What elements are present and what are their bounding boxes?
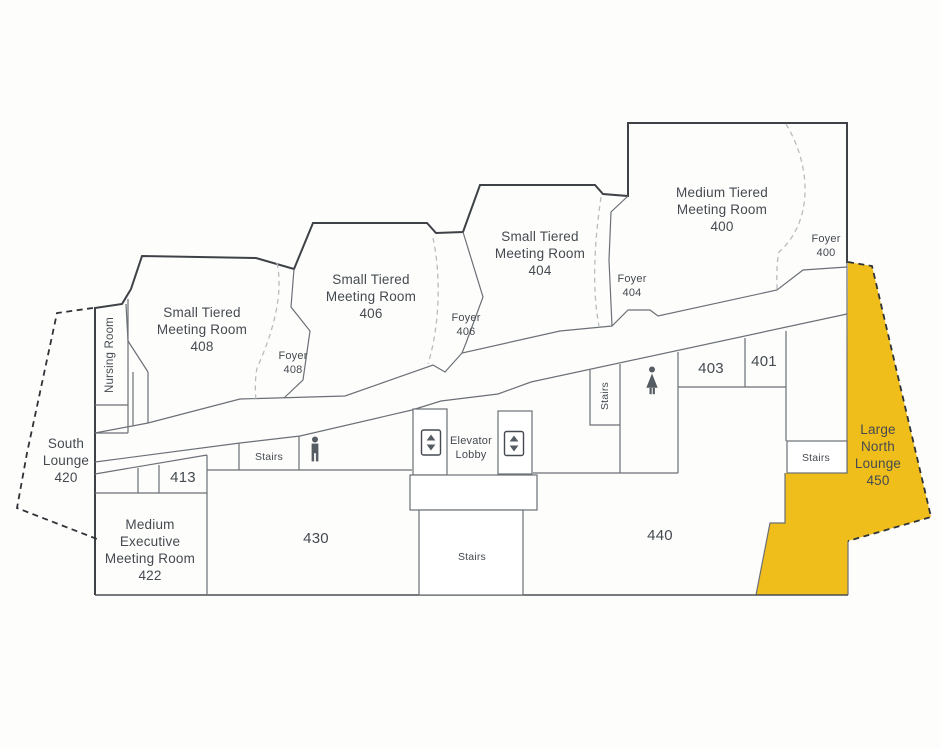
room-400-line1: Medium Tiered	[676, 185, 768, 200]
room-400-line2: Meeting Room	[677, 202, 767, 217]
room-408-line2: Meeting Room	[157, 322, 247, 337]
room-422-number: 422	[138, 568, 161, 583]
foyer-406-number: 406	[457, 326, 476, 338]
room-422-label[interactable]: Medium Executive Meeting Room 422	[105, 517, 195, 583]
elevator-lobby-lower-box	[410, 475, 537, 510]
room-400-number: 400	[710, 219, 733, 234]
foyer-404-label: Foyer 404	[617, 273, 646, 299]
room-404-line2: Meeting Room	[495, 246, 585, 261]
room-422-line3: Meeting Room	[105, 551, 195, 566]
room-422-line1: Medium	[125, 517, 174, 532]
floor-plan-svg: Small Tiered Meeting Room 408 Small Tier…	[0, 0, 940, 749]
foyer-404-number: 404	[623, 287, 642, 299]
room-406-label[interactable]: Small Tiered Meeting Room 406	[326, 272, 416, 321]
elevator-lobby-line2: Lobby	[456, 449, 487, 461]
foyer-400-label: Foyer 400	[811, 233, 840, 259]
womens-restroom-icon	[646, 367, 657, 395]
room-404-line1: Small Tiered	[501, 229, 578, 244]
elevator-right-icon	[505, 432, 524, 456]
nursing-room-label: Nursing Room	[104, 317, 116, 393]
room-north-lounge-450[interactable]	[756, 262, 931, 595]
room-430-label[interactable]: 430	[303, 530, 329, 547]
room-406-line2: Meeting Room	[326, 289, 416, 304]
stairs-east-label: Stairs	[802, 452, 830, 464]
stairs-west-box-walls	[207, 436, 412, 470]
foyer-404-dashed-line	[595, 197, 601, 326]
south-lounge-dashed-boundary	[17, 308, 97, 539]
north-lounge-number: 450	[866, 473, 889, 488]
foyer-406-line1: Foyer	[451, 312, 480, 324]
foyer-408-line1: Foyer	[278, 350, 307, 362]
foyer-406-label: Foyer 406	[451, 312, 480, 338]
room-403-label[interactable]: 403	[698, 360, 724, 377]
elevator-left-icon	[422, 430, 441, 455]
room-408-lower-walls	[126, 304, 148, 426]
foyer-400-dashed-line	[777, 124, 805, 289]
south-lounge-line2: Lounge	[43, 453, 89, 468]
north-lounge-line1: Large	[860, 422, 896, 437]
south-lounge-line1: South	[48, 436, 84, 451]
stairs-west-label: Stairs	[255, 451, 283, 463]
foyer-400-number: 400	[817, 247, 836, 259]
room-408-label[interactable]: Small Tiered Meeting Room 408	[157, 305, 247, 354]
foyer-404-line1: Foyer	[617, 273, 646, 285]
foyer-408-label: Foyer 408	[278, 350, 307, 376]
elevator-lobby-line1: Elevator	[450, 435, 492, 447]
foyer-400-line1: Foyer	[811, 233, 840, 245]
north-lounge-line3: Lounge	[855, 456, 901, 471]
room-401-label[interactable]: 401	[751, 353, 777, 370]
room-422-line2: Executive	[120, 534, 180, 549]
south-lounge-label[interactable]: South Lounge 420	[43, 436, 89, 485]
wall-408-406	[284, 269, 310, 398]
elevator-lobby-label: Elevator Lobby	[450, 435, 492, 461]
room-408-number: 408	[190, 339, 213, 354]
wall-404-400	[609, 196, 628, 326]
stairs-center-label: Stairs	[458, 551, 486, 563]
room-440-label[interactable]: 440	[647, 527, 673, 544]
room-404-label[interactable]: Small Tiered Meeting Room 404	[495, 229, 585, 278]
foyer-408-dashed-line	[255, 263, 279, 400]
mens-restroom-icon	[312, 437, 319, 462]
north-lounge-shape[interactable]	[756, 262, 931, 595]
room-408-line1: Small Tiered	[163, 305, 240, 320]
room-404-number: 404	[528, 263, 551, 278]
south-lounge-number: 420	[54, 470, 77, 485]
floor-plan-canvas: Small Tiered Meeting Room 408 Small Tier…	[0, 0, 940, 749]
room-406-number: 406	[359, 306, 382, 321]
room-400-label[interactable]: Medium Tiered Meeting Room 400	[676, 185, 768, 234]
stairs-north-label: Stairs	[599, 382, 611, 410]
room-406-line1: Small Tiered	[332, 272, 409, 287]
north-lounge-line2: North	[861, 439, 895, 454]
foyer-408-number: 408	[284, 364, 303, 376]
foyer-406-dashed-line	[428, 238, 438, 364]
room-413-label[interactable]: 413	[170, 469, 196, 486]
